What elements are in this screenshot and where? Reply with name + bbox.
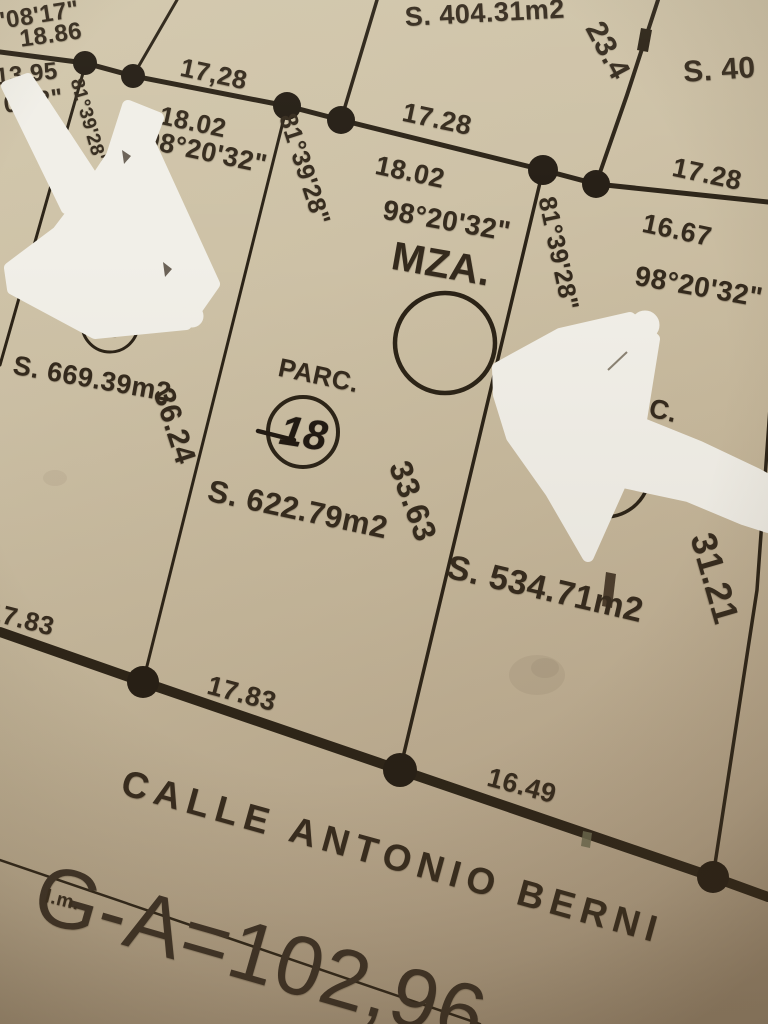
parcel18-parc-label: PARC.	[276, 352, 362, 399]
survey-map-photo: '08'17" 18.86 13.95 0'32" 17,28 18.02 98…	[0, 0, 768, 1024]
measurement-17-28-a: 17,28	[178, 52, 251, 96]
parcel17-number: 17	[90, 308, 127, 345]
frontage-16-49: 16.49	[484, 762, 560, 810]
measurement-18-02-b: 18.02	[373, 150, 448, 195]
depth-33-63: 33.63	[381, 456, 444, 546]
area-label-parcel18: S. 622.79m2	[205, 473, 392, 546]
angle-81-39-28-left: 81°39'28"	[65, 76, 111, 168]
area-label-upper-parcel: S. 404.31m2	[404, 0, 566, 33]
block-label: MZA.	[388, 234, 494, 296]
frontage-17-83-mid: 17.83	[204, 670, 280, 718]
parcel19-parc-label: PARC.	[591, 380, 680, 429]
depth-31-21: 31.21	[682, 528, 748, 629]
area-label-upper-right-parcel: S. 40	[682, 51, 757, 90]
frontage-17-83-left: 17.83	[0, 596, 58, 642]
measurement-16-67: 16.67	[640, 208, 715, 253]
measurement-23-4: 23.4	[578, 16, 636, 85]
depth-36-24: 36.24	[146, 384, 202, 468]
area-label-parcel19: S. 534.71m2	[443, 548, 647, 631]
angle-81-39-28-right: 81°39'28"	[532, 194, 584, 313]
measurement-17-28-c: 17.28	[670, 152, 745, 197]
map-labels: '08'17" 18.86 13.95 0'32" 17,28 18.02 98…	[0, 0, 768, 1024]
parcel18-number: 18	[276, 406, 331, 461]
measurement-17-28-b: 17.28	[400, 97, 475, 142]
angle-81-39-28-mid: 81°39'28"	[272, 110, 335, 229]
angle-98-20-32-c: 98°20'32"	[632, 260, 765, 314]
